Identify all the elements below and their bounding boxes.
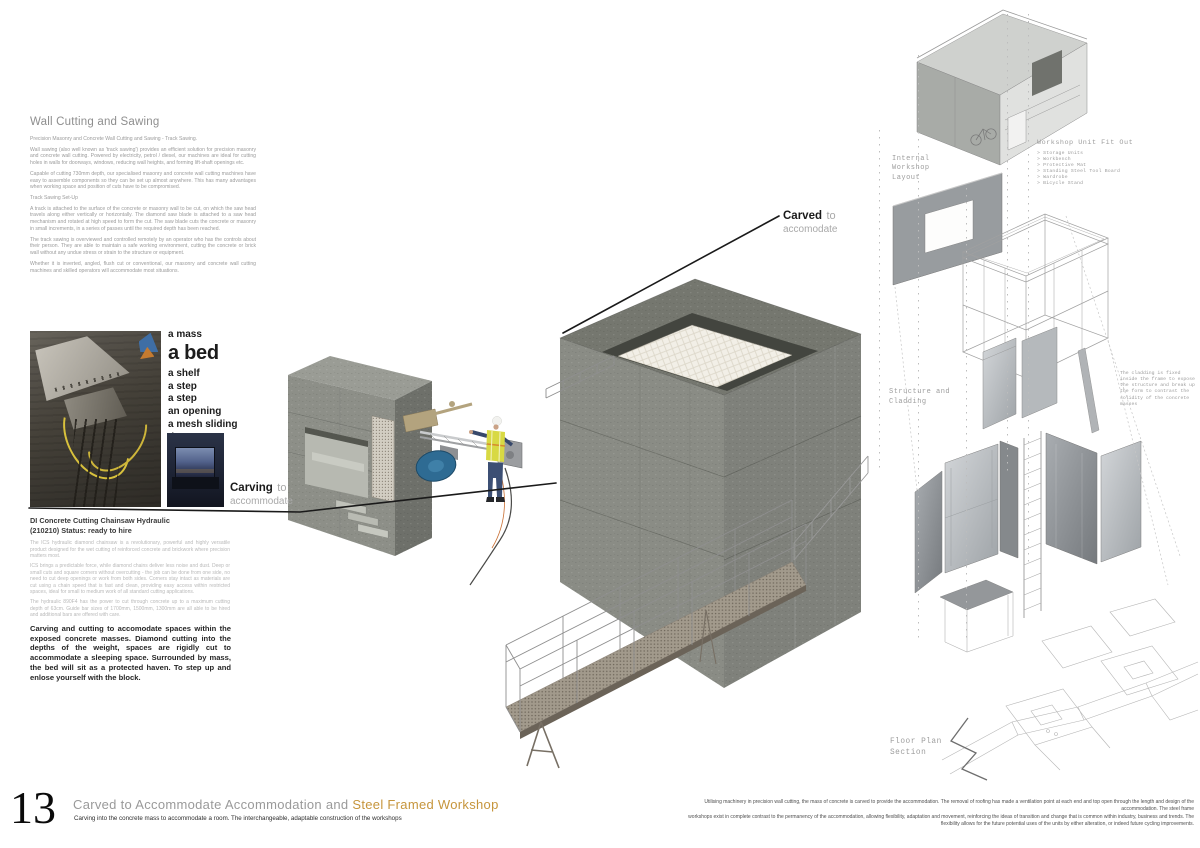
bed-silhouette bbox=[172, 477, 220, 489]
cutting-concrete-block bbox=[288, 356, 432, 556]
window-view bbox=[176, 448, 214, 479]
body-paragraph: A track is attached to the surface of th… bbox=[30, 206, 256, 233]
label-gray: to bbox=[826, 210, 835, 222]
dotted-guide-line bbox=[879, 130, 880, 470]
bed-window-photo bbox=[167, 433, 224, 507]
hire-heading-line2: (210210) Status: ready to hire bbox=[30, 526, 200, 536]
carve-word: a shelf bbox=[168, 368, 246, 381]
wall-cutting-paragraphs: Precision Masonry and Concrete Wall Cutt… bbox=[30, 136, 256, 278]
axon-wall-panel bbox=[893, 173, 1002, 285]
hire-heading-line1: DI Concrete Cutting Chainsaw Hydraulic bbox=[30, 516, 200, 526]
page-number: 13 bbox=[10, 785, 56, 831]
carved-to-accomodate-label: Carved to accomodate bbox=[783, 206, 837, 236]
spec-paragraph: The hydraulic 890F4 has the power to cut… bbox=[30, 599, 230, 619]
carving-to-accommodate-label: Carving to accommodate bbox=[230, 478, 293, 508]
structure-cladding-label: Structure and Cladding bbox=[889, 387, 950, 407]
workshop-fitout-list: > Storage Units> Workbench> Protective M… bbox=[1037, 151, 1120, 187]
carve-word-bed: a bed bbox=[168, 343, 246, 364]
footer-description: Utilising machinery in precision wall cu… bbox=[678, 799, 1194, 828]
sheet-subtitle: Carving into the concrete mass to accomm… bbox=[74, 815, 402, 822]
sheet-title-accent: Steel Framed Workshop bbox=[352, 797, 498, 812]
sheet-title-gray: Carved to Accommodate Accommodation and bbox=[73, 797, 352, 812]
carve-word: an opening bbox=[168, 406, 246, 419]
body-paragraph: Track Sawing Set-Up bbox=[30, 195, 256, 202]
spec-paragraph: The ICS hydraulic diamond chainsaw is a … bbox=[30, 540, 230, 560]
cladding-note: The cladding is fixed inside the frame t… bbox=[1120, 371, 1198, 408]
body-paragraph: The track sawing is overviewed and contr… bbox=[30, 237, 256, 257]
chainsaw-hire-heading: DI Concrete Cutting Chainsaw Hydraulic (… bbox=[30, 516, 200, 536]
carved-elements-list: a mass a bed a shelf a step a step an op… bbox=[168, 329, 246, 445]
label-line2: accommodate bbox=[230, 496, 293, 508]
label-bold: Carved bbox=[783, 210, 822, 222]
chainsaw-spec-paragraphs: The ICS hydraulic diamond chainsaw is a … bbox=[30, 540, 230, 622]
carve-word: a mass bbox=[168, 329, 246, 342]
label-bold: Carving bbox=[230, 482, 273, 494]
portfolio-sheet: Wall Cutting and Sawing Precision Masonr… bbox=[0, 0, 1200, 848]
body-paragraph: Capable of cutting 730mm depth, our spec… bbox=[30, 171, 256, 191]
label-gray: to bbox=[277, 482, 286, 494]
workshop-fitout-title: Workshop Unit Fit Out bbox=[1037, 139, 1133, 147]
hanging-cables bbox=[69, 419, 122, 507]
dotted-guide-line bbox=[1028, 14, 1029, 564]
floor-plan-section-label: Floor Plan Section bbox=[890, 737, 942, 759]
chainsaw-cutting-photo bbox=[30, 331, 161, 507]
dotted-guide-line bbox=[1007, 14, 1008, 476]
body-paragraph: Wall sawing (also well known as 'track s… bbox=[30, 147, 256, 167]
label-line2: accomodate bbox=[783, 224, 837, 236]
axon-cladding-sheets bbox=[983, 327, 1099, 433]
horizon-line bbox=[176, 469, 214, 473]
body-paragraph: Precision Masonry and Concrete Wall Cutt… bbox=[30, 136, 256, 143]
section-title: Wall Cutting and Sawing bbox=[30, 116, 159, 128]
fitout-item: > Bicycle Stand bbox=[1037, 181, 1120, 187]
dotted-guide-line bbox=[918, 55, 919, 640]
sheet-title: Carved to Accommodate Accommodation and … bbox=[73, 797, 499, 812]
internal-workshop-layout-label: Internal Workshop Layout bbox=[892, 155, 930, 183]
body-paragraph: Whether it is inverted, angled, flush cu… bbox=[30, 261, 256, 274]
dotted-guide-line bbox=[966, 188, 967, 643]
carving-statement: Carving and cutting to accomodate spaces… bbox=[30, 624, 231, 682]
hard-hat bbox=[492, 416, 501, 425]
floor-plan-drawing bbox=[940, 580, 1198, 780]
carve-word: a step bbox=[168, 381, 246, 394]
spec-paragraph: ICS brings a predictable force, while di… bbox=[30, 563, 230, 596]
mesh-sliding-door bbox=[372, 416, 394, 502]
carve-word: a step bbox=[168, 393, 246, 406]
